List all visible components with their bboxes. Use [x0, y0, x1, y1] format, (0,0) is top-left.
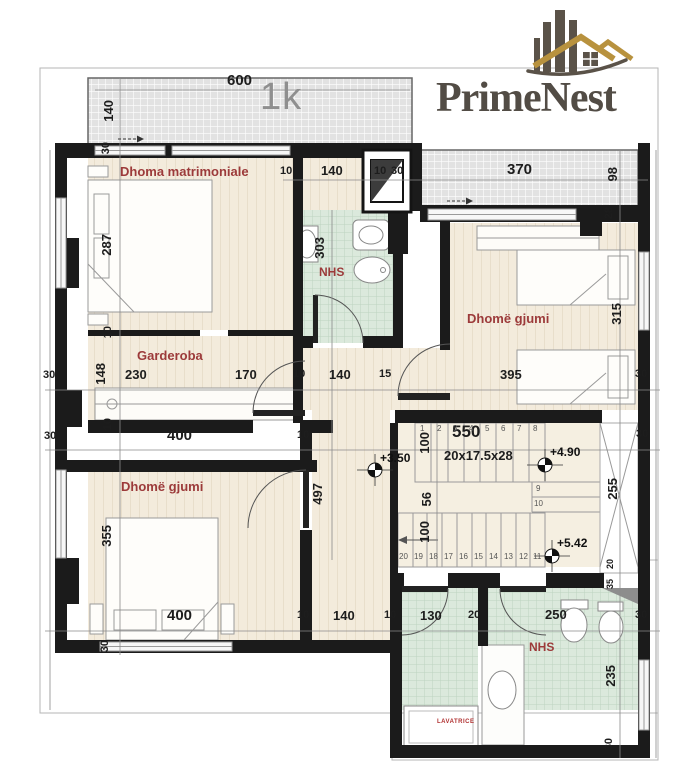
dim-mid-395: 395 — [500, 368, 522, 381]
dim-bot-10a: 10 — [297, 610, 309, 621]
dim-row400-400: 400 — [167, 428, 192, 443]
step-number: 18 — [429, 553, 438, 561]
dim-run-100b: 100 — [418, 521, 431, 543]
step-number: 13 — [504, 553, 513, 561]
level-hall: +3.50 — [380, 452, 410, 464]
dim-balcony2-depth: 98 — [606, 167, 619, 181]
room-label-bath-top: NHS — [319, 266, 344, 278]
dim-bath-235: 235 — [604, 665, 617, 687]
dim-wall-right: 28 — [604, 207, 615, 219]
logo-building-icon — [528, 10, 632, 74]
dim-mid-230: 230 — [125, 368, 147, 381]
dim-bath-width-top: 140 — [321, 164, 343, 177]
dim-wall10-a: 10 — [103, 326, 114, 338]
dim-bot-10b: 10 — [384, 610, 396, 621]
room-label-wardrobe: Garderoba — [137, 349, 203, 362]
dim-bath-door: 10 — [280, 166, 292, 177]
stair-spec: 20x17.5x28 — [444, 449, 513, 462]
step-number: 9 — [536, 485, 540, 493]
label-washing-machine: LAVATRICE — [437, 719, 475, 725]
dim-mid-170: 170 — [235, 368, 257, 381]
dim-bath-depth: 303 — [313, 237, 326, 259]
dim-right-30-bottom: 30 — [604, 738, 615, 750]
dim-bot-130: 130 — [420, 609, 442, 622]
step-number: 5 — [485, 425, 489, 433]
dim-mid-140: 140 — [329, 368, 351, 381]
step-number: 6 — [501, 425, 505, 433]
dim-bot-250: 250 — [545, 608, 567, 621]
dim-wall10-b: 10 — [103, 418, 114, 430]
step-number: 3 — [453, 425, 457, 433]
dim-row400-30-right: 30 — [636, 429, 648, 440]
dim-wall-top: 30 — [101, 142, 112, 154]
step-number: 17 — [444, 553, 453, 561]
shaft — [363, 150, 411, 212]
dim-mid-30-right: 30 — [635, 369, 647, 380]
floor-plan: PrimeNest 1k Dhoma matrimoniale Garderob… — [0, 0, 692, 768]
step-number: 16 — [459, 553, 468, 561]
brand-name: PrimeNest — [436, 74, 616, 122]
step-number: 4 — [469, 425, 473, 433]
dim-mid-10: 10 — [293, 369, 305, 380]
dim-bot-400: 400 — [167, 608, 192, 623]
dim-wardrobe-depth: 148 — [94, 363, 107, 385]
room-label-bedroom-right: Dhomë gjumi — [467, 312, 549, 325]
dim-mid-30-left: 30 — [43, 370, 55, 381]
dim-bot-30: 30 — [635, 610, 647, 621]
step-number: 2 — [437, 425, 441, 433]
dim-landing-56: 56 — [420, 492, 433, 506]
dim-row400-10: 10 — [297, 430, 309, 441]
dim-run-100a: 100 — [418, 432, 431, 454]
level-top: +5.42 — [557, 537, 587, 549]
dim-top-width: 600 — [227, 73, 252, 88]
dim-bed-left-height: 355 — [100, 525, 113, 547]
room-label-bedroom-left: Dhomë gjumi — [121, 480, 203, 493]
step-number: 7 — [517, 425, 521, 433]
step-number: 14 — [489, 553, 498, 561]
dim-shaft-a: 10 — [374, 166, 386, 177]
dim-right-20: 20 — [606, 559, 615, 569]
level-mid: +4.90 — [550, 446, 580, 458]
dim-left-30-bottom: 30 — [100, 640, 111, 652]
dim-master-depth: 287 — [100, 234, 113, 256]
dim-bot-140: 140 — [333, 609, 355, 622]
step-number: 10 — [534, 500, 543, 508]
dim-right-35: 35 — [606, 579, 615, 589]
step-number: 11 — [533, 553, 541, 561]
unit-label: 1k — [260, 78, 302, 116]
step-number: 8 — [533, 425, 537, 433]
washing-machine — [404, 706, 478, 748]
dim-bot-20: 20 — [468, 610, 480, 621]
step-number: 19 — [414, 553, 423, 561]
room-label-master: Dhoma matrimoniale — [120, 165, 249, 178]
step-number: 15 — [474, 553, 483, 561]
step-number: 20 — [399, 553, 408, 561]
dim-mid-15: 15 — [379, 369, 391, 380]
dim-row400-30-left: 30 — [44, 431, 56, 442]
dim-hall-depth: 497 — [311, 483, 324, 505]
dim-bedroom-right-depth: 315 — [610, 303, 623, 325]
dim-shaft-b: 30 — [391, 166, 403, 177]
dim-balcony-depth: 140 — [102, 100, 115, 122]
step-number: 12 — [519, 553, 528, 561]
room-label-bath-bottom: NHS — [529, 641, 554, 653]
dim-void-255: 255 — [606, 478, 619, 500]
dim-balcony2-width: 370 — [507, 162, 532, 177]
